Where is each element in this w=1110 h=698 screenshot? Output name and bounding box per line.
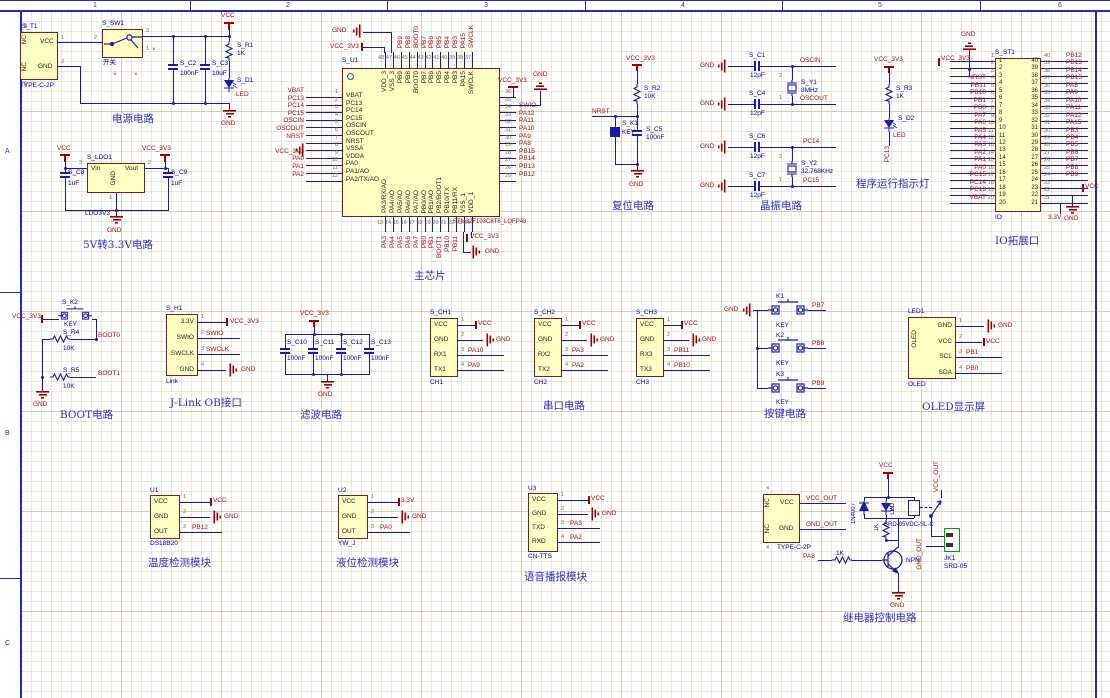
net-label[interactable]: PA3 (944, 142, 986, 149)
ref[interactable]: S_CH1 (430, 310, 451, 317)
value[interactable]: 1K (237, 51, 245, 58)
gnd-symbol[interactable] (230, 364, 238, 377)
gnd-symbol[interactable] (36, 391, 49, 399)
power-port-vcc3v3[interactable]: VCC_3V3 (12, 314, 41, 321)
gnd-symbol[interactable] (718, 60, 726, 73)
power-port-gnd[interactable]: GND (533, 72, 547, 79)
value[interactable]: 10K (63, 346, 75, 353)
net-label[interactable]: VCC (478, 321, 492, 328)
net-label[interactable]: PA10 (468, 348, 483, 355)
net-label[interactable]: NRST (944, 75, 986, 82)
net-label[interactable]: PB12 (192, 525, 208, 532)
net-label[interactable]: PC13 (885, 146, 893, 162)
net-label[interactable]: PB7 (1066, 157, 1078, 164)
net-label[interactable]: PB0 (944, 105, 986, 112)
power-port-gnd[interactable]: GND (33, 402, 47, 409)
pin-number: 46 (394, 56, 400, 62)
switch-icon (104, 31, 142, 55)
ref[interactable]: S_SW1 (102, 21, 124, 28)
ref[interactable]: S_Y1 (801, 80, 817, 87)
ref[interactable]: S_H1 (166, 306, 182, 313)
wire-segment (728, 147, 754, 148)
power-port-gnd[interactable]: GND (221, 121, 235, 128)
net-label[interactable]: PB14 (519, 156, 535, 163)
ref[interactable]: S_C4 (749, 91, 765, 98)
net-label[interactable]: PA2 (258, 172, 304, 179)
part-name[interactable]: TYPE-C-2P (777, 545, 811, 552)
power-port-gnd[interactable]: GND (107, 228, 121, 235)
net-label[interactable]: GND (602, 511, 616, 518)
wire-segment (931, 536, 944, 537)
pin-name: VCC (538, 322, 552, 329)
wire-segment (70, 377, 96, 378)
wire-segment (198, 338, 240, 339)
pin-name: 9 (999, 118, 1002, 124)
ref[interactable]: S_C10 (287, 340, 307, 347)
symbol-shape (778, 377, 798, 380)
ref[interactable]: S_C6 (749, 134, 765, 141)
gnd-symbol[interactable] (963, 42, 976, 50)
gnd-symbol[interactable] (534, 82, 547, 90)
part-name[interactable]: Link (166, 379, 178, 386)
gnd-symbol[interactable] (718, 98, 726, 111)
gnd-symbol[interactable] (988, 320, 996, 333)
net-label[interactable]: GND_OUT (917, 538, 925, 570)
gnd-symbol[interactable] (718, 180, 726, 193)
power-port-gnd[interactable]: GND (700, 144, 714, 151)
net-label[interactable]: GND (702, 337, 716, 344)
power-port-gnd[interactable]: GND (485, 249, 499, 256)
part-name[interactable]: OLED (908, 382, 926, 389)
crystal-icon (784, 80, 800, 96)
gnd-symbol[interactable] (214, 511, 222, 524)
power-port-gnd[interactable]: GND (318, 392, 332, 399)
power-port-3v3[interactable]: 3.3V (1048, 215, 1061, 222)
value[interactable]: 100nF (343, 356, 361, 363)
key-button-icon[interactable] (768, 299, 808, 317)
wire-segment (42, 339, 43, 391)
pin-number: 2 (183, 510, 186, 516)
key-button-icon[interactable] (610, 127, 620, 137)
value[interactable]: 1uF (68, 181, 79, 188)
net-label[interactable]: OSCIN (800, 58, 821, 65)
wire-segment (898, 573, 899, 592)
value[interactable]: NPN (906, 558, 920, 565)
pin-number: 3 (985, 69, 994, 75)
net-label[interactable]: PA12 (519, 111, 534, 118)
part-name[interactable]: YW_J (338, 541, 355, 548)
power-port-vcc3v3[interactable]: VCC_3V3 (470, 234, 499, 241)
net-label[interactable]: BOOT1 (98, 371, 120, 378)
net-label[interactable]: OSCIN (258, 118, 304, 125)
net-label[interactable]: VBAT (944, 195, 986, 202)
pin-number: 31 (1044, 121, 1050, 127)
net-label[interactable]: GND (241, 367, 255, 374)
power-port-vcc[interactable]: VCC (57, 146, 71, 153)
value[interactable]: 100nF (180, 71, 198, 78)
net-label[interactable]: OSCOUT (800, 96, 828, 103)
net-label[interactable]: PB13 (519, 164, 535, 171)
gnd-symbol[interactable] (321, 381, 334, 389)
ref[interactable]: S_C11 (315, 340, 334, 347)
net-label[interactable]: 3.3V (401, 498, 414, 505)
net-label[interactable]: PC15 (944, 172, 986, 179)
pin-number: 1 (183, 495, 186, 501)
symbol-shape (634, 84, 640, 104)
pin-name: PA0 (346, 161, 358, 168)
net-label[interactable]: PA10 (519, 126, 534, 133)
pin-name: SDA (920, 370, 952, 377)
net-label[interactable]: PB13 (1066, 60, 1082, 67)
power-port-vcc3v3[interactable]: VCC_3V3 (626, 56, 655, 63)
net-label[interactable]: GND (600, 337, 614, 344)
net-label[interactable]: BOOT0 (98, 333, 120, 340)
wire-segment (889, 73, 890, 84)
gnd-symbol[interactable] (718, 141, 726, 154)
power-port-gnd[interactable]: GND (1064, 216, 1078, 223)
no-erc-marker: × (113, 72, 117, 78)
net-label[interactable]: PA0 (258, 156, 304, 163)
value[interactable]: KEY (776, 323, 789, 330)
power-bar-icon (681, 321, 683, 329)
net-label[interactable]: PA9 (468, 363, 480, 370)
net-label[interactable]: PA11 (1066, 105, 1081, 112)
net-label[interactable]: PA6 (944, 120, 986, 127)
value[interactable]: 1uF (171, 181, 182, 188)
part-name[interactable]: CH3 (636, 380, 649, 387)
net-label[interactable]: VCC (591, 496, 605, 503)
net-label[interactable]: PA1 (944, 157, 986, 164)
pin-number: 42 (425, 56, 431, 62)
gnd-symbol[interactable] (487, 334, 495, 347)
symbol-shape (50, 336, 70, 342)
ref[interactable]: S_U1 (342, 58, 358, 65)
value[interactable]: 开关 (103, 60, 116, 67)
net-label[interactable]: PB15 (519, 149, 535, 156)
pin-name: VSSA (346, 146, 363, 153)
power-port-gnd[interactable]: GND (961, 32, 975, 39)
relay-coil-icon[interactable] (908, 500, 920, 516)
ref[interactable]: S_C8 (68, 170, 84, 177)
net-label[interactable]: OSCOUT (258, 126, 304, 133)
gnd-symbol[interactable] (892, 592, 905, 600)
power-port-vcc3v3[interactable]: VCC_3V3 (300, 311, 329, 318)
net-label[interactable]: VCC (986, 339, 1000, 346)
net-label[interactable]: VCC (684, 321, 698, 328)
net-label[interactable]: GND (998, 323, 1012, 330)
ref[interactable]: JK1 (944, 556, 955, 563)
net-label[interactable]: PA2 (570, 535, 582, 542)
power-port-vcc3v3[interactable]: VCC_3V3 (498, 78, 527, 85)
value[interactable]: KEY (776, 361, 789, 368)
wire-segment (205, 70, 206, 103)
gnd-symbol[interactable] (223, 110, 236, 118)
wire-segment (818, 560, 832, 561)
net-label[interactable]: GND (224, 514, 238, 521)
ref[interactable]: S_LDO1 (87, 155, 112, 162)
net-label[interactable]: PC15 (258, 111, 304, 118)
key-button-icon[interactable] (768, 377, 808, 395)
wire-segment (368, 517, 398, 518)
value[interactable]: 12pF (750, 154, 765, 161)
net-label[interactable]: PB10 (944, 90, 986, 97)
ref[interactable]: S_C7 (749, 173, 765, 180)
net-label[interactable]: VBAT (258, 88, 304, 95)
ref[interactable]: S_CH3 (636, 310, 657, 317)
key-button-icon[interactable] (58, 306, 92, 322)
net-label[interactable]: VCC_OUT (934, 461, 942, 492)
pin-name: 8 (999, 110, 1002, 116)
part-name[interactable]: TYPE-C-2P (20, 83, 54, 90)
pin-number: 3 (667, 348, 670, 354)
wire-segment (562, 370, 608, 371)
value[interactable]: LED (890, 503, 898, 515)
net-label[interactable]: GND_OUT (806, 522, 838, 529)
power-port-gnd[interactable]: GND (724, 307, 738, 314)
net-label[interactable]: PC14 (803, 139, 819, 146)
net-label[interactable]: NRST (258, 134, 304, 141)
net-label[interactable]: PA3 (570, 521, 582, 528)
power-port-vcc[interactable]: VCC (1085, 184, 1099, 191)
wire-segment (368, 502, 398, 503)
power-port-vcc[interactable]: VCC (221, 13, 235, 20)
block-title: IO拓展口 (995, 236, 1039, 247)
power-port-vcc[interactable]: VCC (879, 463, 893, 470)
power-port-gnd[interactable]: GND (700, 101, 714, 108)
value[interactable]: 12pF (750, 111, 765, 118)
pin-name: 1 (999, 58, 1002, 64)
value[interactable]: LED (236, 92, 249, 99)
part-name[interactable]: IO (995, 215, 1002, 222)
power-port-vcc3v3[interactable]: VCC_3V3 (330, 44, 359, 51)
ref[interactable]: S_ST1 (995, 50, 1015, 57)
ref[interactable]: S_C9 (171, 170, 187, 177)
pin-number: 2 (201, 331, 204, 337)
relay-output-connector[interactable] (944, 528, 960, 552)
gnd-symbol[interactable] (591, 334, 599, 347)
sheet-border (980, 0, 981, 10)
net-label[interactable]: PB10 (674, 363, 690, 370)
gnd-symbol[interactable] (1066, 206, 1079, 214)
value[interactable]: 10uF (212, 71, 227, 78)
power-bar-icon (398, 498, 400, 506)
value[interactable]: 10K (63, 384, 75, 391)
net-label[interactable]: PA8 (803, 554, 815, 561)
key-button-icon[interactable] (768, 337, 808, 355)
pin-name: 34 (1025, 103, 1038, 109)
pin-name: OSCIN (346, 123, 367, 130)
power-port-gnd[interactable]: GND (890, 603, 904, 610)
net-label[interactable]: VCC (582, 321, 596, 328)
gnd-symbol[interactable] (592, 508, 600, 521)
gnd-symbol[interactable] (473, 246, 481, 259)
net-label[interactable]: PB9 (812, 381, 824, 388)
value[interactable]: 10K (644, 94, 656, 101)
value[interactable]: 8MHz (801, 88, 818, 95)
value[interactable]: 100nF (646, 135, 664, 142)
pin-number: 13 (985, 143, 994, 149)
net-label[interactable]: PA9 (1066, 90, 1078, 97)
wire-segment (70, 339, 96, 340)
net-label[interactable]: PB1 (966, 350, 978, 357)
part-name[interactable]: SRD-05 (944, 564, 967, 571)
gnd-symbol[interactable] (296, 144, 304, 157)
pin-number: 1 (146, 47, 149, 53)
power-port-gnd[interactable]: GND (629, 182, 643, 189)
net-label[interactable]: PB9 (1066, 172, 1078, 179)
net-label[interactable]: PA0 (380, 525, 392, 532)
ref[interactable]: S_C1 (749, 53, 765, 60)
ref[interactable]: S_C13 (371, 340, 391, 347)
value[interactable]: 32.768KHz (801, 169, 833, 176)
pin-number: 2 (667, 333, 670, 339)
ref[interactable]: LED1 (908, 309, 924, 316)
value[interactable]: 1N4007 (851, 503, 859, 524)
net-label[interactable]: GND (496, 337, 510, 344)
pin1-marker-icon (347, 73, 354, 80)
ref[interactable]: S_C3 (212, 61, 228, 68)
junction-dot (172, 102, 175, 105)
wire-segment (808, 348, 826, 349)
value[interactable]: KEY (64, 322, 77, 329)
part-name[interactable]: CH2 (534, 380, 547, 387)
value[interactable]: KEY (776, 400, 789, 407)
net-label[interactable]: PB8 (812, 341, 824, 348)
power-port-vcc3v3[interactable]: VCC_3V3 (874, 57, 903, 64)
net-label[interactable]: PA2 (572, 363, 584, 370)
pin-number: 2 (985, 61, 994, 67)
ref[interactable]: U2 (338, 488, 346, 495)
symbol-shape (832, 557, 852, 563)
pin-number: 3 (183, 525, 186, 531)
ref[interactable]: S_C5 (646, 127, 662, 134)
net-label[interactable]: PA15 (1066, 120, 1081, 127)
net-label[interactable]: PB0 (966, 366, 978, 373)
gnd-symbol[interactable] (631, 170, 644, 178)
ref[interactable]: S_D1 (237, 78, 253, 85)
npn-transistor-icon[interactable] (882, 542, 906, 578)
part-name[interactable]: CN-TTS (528, 554, 552, 561)
net-label[interactable]: PA8 (519, 141, 531, 148)
ref[interactable]: S_K1 (622, 121, 638, 128)
wire-segment (941, 490, 942, 498)
value[interactable]: 1K (896, 94, 904, 101)
pin-name: VCC (154, 499, 168, 506)
relay-switch-icon[interactable] (928, 496, 944, 518)
net-label[interactable]: PB5 (1066, 142, 1078, 149)
gnd-symbol[interactable] (402, 511, 410, 524)
net-label[interactable]: GND (412, 514, 426, 521)
value[interactable]: 100nF (315, 356, 333, 363)
part-name[interactable]: LDO3V3 (85, 211, 110, 218)
led-icon (223, 78, 235, 92)
value[interactable]: LED (893, 133, 906, 140)
symbol-shape (50, 374, 70, 380)
pin-number: 32 (501, 120, 515, 126)
value[interactable]: 12pF (750, 73, 765, 80)
net-label[interactable]: PC14 (258, 103, 304, 110)
pin-number: 8 (985, 106, 994, 112)
pin-name: TX2 (538, 367, 550, 374)
ref[interactable]: S_C12 (343, 340, 363, 347)
net-label[interactable]: PB12 (519, 172, 535, 179)
net-label[interactable]: PA11 (519, 118, 534, 125)
ref[interactable]: S_R1 (237, 43, 253, 50)
pin-name: 28 (1025, 147, 1038, 153)
net-label[interactable]: PB15 (1066, 75, 1082, 82)
wire-segment (889, 104, 890, 118)
value[interactable]: 12pF (750, 193, 765, 200)
schematic-canvas[interactable]: 1 2 3 4 5 6 A B C VCC S_T1 NC NC VCC GND… (0, 0, 1110, 698)
part-name[interactable]: CH1 (430, 380, 443, 387)
net-label[interactable]: SWCLK (206, 347, 229, 354)
power-port-gnd[interactable]: GND (332, 28, 346, 35)
gnd-symbol[interactable] (353, 25, 361, 38)
ref[interactable]: S_C2 (180, 61, 196, 68)
wire-segment (808, 388, 826, 389)
ref[interactable]: S_D2 (898, 116, 914, 123)
gnd-symbol[interactable] (743, 304, 751, 317)
ref[interactable]: U1 (150, 488, 158, 495)
ref[interactable]: S_CH2 (534, 310, 555, 317)
ref[interactable]: S_R2 (644, 86, 660, 93)
pin-number: 39 (1044, 61, 1050, 67)
symbol-shape (226, 41, 232, 61)
net-label[interactable]: PC13 (258, 96, 304, 103)
value[interactable]: 100nF (371, 356, 389, 363)
part-name[interactable]: SRD-05VDC-SL-C (884, 522, 934, 528)
net-label[interactable]: PA1 (258, 164, 304, 171)
net-label[interactable]: PC15 (803, 178, 819, 185)
power-port-gnd[interactable]: GND (700, 63, 714, 70)
net-label[interactable]: SWCLK (469, 25, 477, 48)
net-label[interactable]: NRST (592, 109, 610, 116)
part-name[interactable]: DS18B20 (150, 541, 178, 548)
ref[interactable]: S_R3 (896, 86, 912, 93)
net-label[interactable]: PC13 (944, 187, 986, 194)
pin-name: 7 (999, 103, 1002, 109)
net-label[interactable]: VCC (213, 498, 227, 505)
ref[interactable]: U3 (528, 486, 536, 493)
power-bar-icon (983, 338, 985, 346)
ref[interactable]: S_Y2 (801, 161, 817, 168)
pin-number: 47 (386, 56, 392, 62)
net-label[interactable]: VCC_OUT (806, 496, 837, 503)
value[interactable]: 100nF (287, 356, 305, 363)
net-label[interactable]: VCC_3V3 (230, 319, 259, 326)
wire-segment (615, 137, 616, 164)
net-label[interactable]: PB7 (812, 303, 824, 310)
net-label[interactable]: PA9 (519, 134, 531, 141)
gnd-symbol[interactable] (693, 334, 701, 347)
block-title: 液位检测模块 (336, 558, 399, 569)
pin-name: PA2/TX/AO (346, 177, 379, 184)
power-port-vcc3v3[interactable]: VCC_3V3 (142, 146, 171, 153)
value[interactable]: 1K (874, 524, 882, 531)
gnd-symbol[interactable] (110, 216, 123, 224)
net-label[interactable]: PB11 (674, 348, 689, 355)
power-port-gnd[interactable]: GND (700, 183, 714, 190)
pin-number: 10 (322, 158, 338, 164)
net-label[interactable]: SWIO (206, 331, 223, 338)
sheet-border (0, 0, 1110, 1)
junction-dot (115, 209, 118, 212)
wire-segment (931, 516, 932, 536)
net-label[interactable]: PA3 (572, 348, 584, 355)
net-label[interactable]: PB11 (453, 236, 461, 251)
pin-name: 10 (999, 125, 1006, 131)
pin-number: 4 (959, 366, 962, 372)
